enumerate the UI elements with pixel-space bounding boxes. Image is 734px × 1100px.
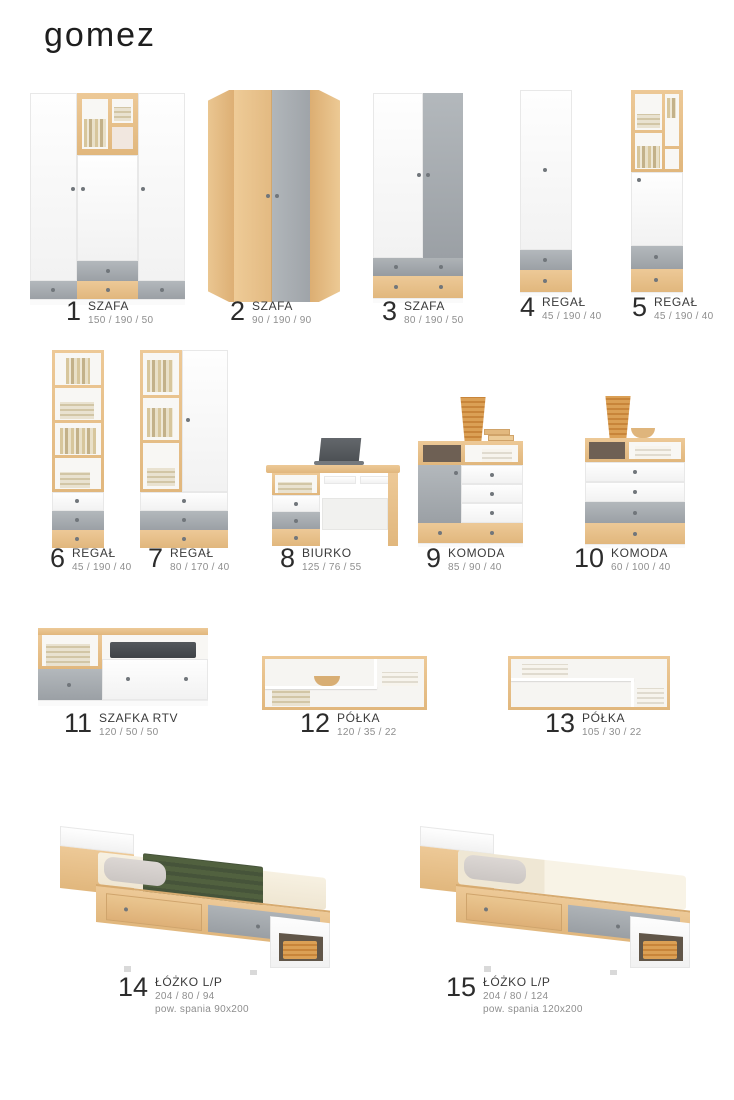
books xyxy=(60,402,94,419)
books xyxy=(60,428,96,454)
books xyxy=(278,482,312,493)
product-name: REGAŁ xyxy=(170,547,230,561)
product-image-lozko-14 xyxy=(38,818,333,975)
product-image-polka-13 xyxy=(508,656,670,710)
books xyxy=(147,360,173,392)
product-name: SZAFA xyxy=(252,300,312,314)
drawer-wood xyxy=(466,893,562,931)
product-dims: 120 / 50 / 50 xyxy=(99,726,178,739)
cabinet-front-white xyxy=(102,659,208,700)
books xyxy=(522,664,568,678)
product-dims: 85 / 90 / 40 xyxy=(448,561,505,574)
wardrobe-door-left xyxy=(30,93,77,281)
product-name: REGAŁ xyxy=(542,296,602,310)
product-name: PÓŁKA xyxy=(582,712,642,726)
product-number: 12 xyxy=(300,712,330,735)
books xyxy=(637,114,660,128)
product-image-regal-6 xyxy=(52,350,104,548)
product-image-regal-4 xyxy=(520,90,572,296)
product-number: 2 xyxy=(230,300,245,323)
product-dims: 80 / 170 / 40 xyxy=(170,561,230,574)
desk-shelf xyxy=(324,476,356,484)
product-dims: 90 / 190 / 90 xyxy=(252,314,312,327)
product-number: 9 xyxy=(426,547,441,570)
drawer-gray xyxy=(373,258,463,276)
books xyxy=(147,468,175,486)
wicker-basket xyxy=(643,941,677,959)
product-label-8: 8 BIURKO 125 / 76 / 55 xyxy=(280,547,362,574)
wardrobe-door-center xyxy=(77,155,138,261)
product-number: 1 xyxy=(66,300,81,323)
books xyxy=(66,358,90,384)
product-number: 7 xyxy=(148,547,163,570)
desk-leg xyxy=(388,473,398,546)
wardrobe-door-white xyxy=(373,93,423,258)
desk-top xyxy=(266,465,400,473)
product-image-regal-7 xyxy=(140,350,228,548)
books xyxy=(635,446,671,459)
laptop-screen xyxy=(319,438,362,462)
product-number: 6 xyxy=(50,547,65,570)
footboard-storage xyxy=(630,916,690,968)
product-name: PÓŁKA xyxy=(337,712,397,726)
books xyxy=(637,146,660,168)
product-image-biurko-8 xyxy=(262,436,404,546)
product-label-9: 9 KOMODA 85 / 90 / 40 xyxy=(426,547,505,574)
product-dims: 60 / 100 / 40 xyxy=(611,561,671,574)
books xyxy=(637,688,664,707)
shelf-divider xyxy=(374,659,377,689)
product-label-14: 14 ŁÓŻKO L/P 204 / 80 / 94 pow. spania 9… xyxy=(118,976,249,1016)
wardrobe-door-right xyxy=(138,93,185,281)
product-dims: 45 / 190 / 40 xyxy=(654,310,714,323)
product-dims: 80 / 190 / 50 xyxy=(404,314,464,327)
product-label-7: 7 REGAŁ 80 / 170 / 40 xyxy=(148,547,230,574)
product-name: BIURKO xyxy=(302,547,362,561)
drawer-wood xyxy=(106,893,202,931)
product-number: 8 xyxy=(280,547,295,570)
books xyxy=(147,408,173,437)
product-label-3: 3 SZAFA 80 / 190 / 50 xyxy=(382,300,464,327)
product-name: KOMODA xyxy=(448,547,505,561)
product-image-komoda-10 xyxy=(585,396,685,548)
books xyxy=(114,107,131,121)
product-image-szafa-1 xyxy=(30,93,185,305)
product-name: REGAŁ xyxy=(654,296,714,310)
product-sleep-area: pow. spania 90x200 xyxy=(155,1003,249,1016)
product-dims: 105 / 30 / 22 xyxy=(582,726,642,739)
product-sleep-area: pow. spania 120x200 xyxy=(483,1003,583,1016)
product-label-12: 12 PÓŁKA 120 / 35 / 22 xyxy=(300,712,397,739)
product-dims: 204 / 80 / 124 xyxy=(483,990,583,1003)
product-number: 10 xyxy=(574,547,604,570)
wood-bowl xyxy=(631,428,655,438)
wicker-vase xyxy=(603,396,633,438)
tv-device xyxy=(110,642,196,658)
product-dims: 204 / 80 / 94 xyxy=(155,990,249,1003)
product-label-13: 13 PÓŁKA 105 / 30 / 22 xyxy=(545,712,642,739)
product-label-6: 6 REGAŁ 45 / 190 / 40 xyxy=(50,547,132,574)
books xyxy=(84,119,106,147)
product-number: 14 xyxy=(118,976,148,999)
product-name: SZAFA xyxy=(404,300,464,314)
product-name: KOMODA xyxy=(611,547,671,561)
product-label-1: 1 SZAFA 150 / 190 / 50 xyxy=(66,300,153,327)
footboard-storage xyxy=(270,916,330,968)
product-name: REGAŁ xyxy=(72,547,132,561)
product-dims: 45 / 190 / 40 xyxy=(542,310,602,323)
catalog-page: gomez xyxy=(0,0,734,1100)
open-niche xyxy=(589,442,625,459)
product-number: 11 xyxy=(64,712,92,735)
product-number: 5 xyxy=(632,296,647,319)
product-image-komoda-9 xyxy=(418,395,523,547)
product-image-szafa-2 xyxy=(208,90,340,302)
product-label-4: 4 REGAŁ 45 / 190 / 40 xyxy=(520,296,602,323)
shelf-divider xyxy=(631,678,634,707)
books xyxy=(482,449,512,462)
shelf-divider xyxy=(511,678,634,681)
product-image-szafa-3 xyxy=(373,93,463,303)
product-name: ŁÓŻKO L/P xyxy=(483,976,583,990)
books xyxy=(382,672,418,686)
drawer-wood xyxy=(373,276,463,298)
product-label-11: 11 SZAFKA RTV 120 / 50 / 50 xyxy=(64,712,178,739)
product-label-10: 10 KOMODA 60 / 100 / 40 xyxy=(574,547,671,574)
product-image-szafka-rtv-11 xyxy=(38,628,208,708)
books xyxy=(60,472,90,488)
product-image-regal-5 xyxy=(631,90,683,296)
product-number: 15 xyxy=(446,976,476,999)
product-label-2: 2 SZAFA 90 / 190 / 90 xyxy=(230,300,312,327)
product-name: SZAFKA RTV xyxy=(99,712,178,726)
product-name: SZAFA xyxy=(88,300,153,314)
product-image-polka-12 xyxy=(262,656,427,710)
product-label-15: 15 ŁÓŻKO L/P 204 / 80 / 124 pow. spania … xyxy=(446,976,583,1016)
product-number: 13 xyxy=(545,712,575,735)
books xyxy=(272,690,310,706)
cabinet-door xyxy=(631,172,683,246)
tv-stand-top xyxy=(38,628,208,635)
product-name: ŁÓŻKO L/P xyxy=(155,976,249,990)
books xyxy=(667,98,676,118)
open-niche xyxy=(423,445,461,462)
product-dims: 45 / 190 / 40 xyxy=(72,561,132,574)
product-dims: 125 / 76 / 55 xyxy=(302,561,362,574)
shelf-divider xyxy=(265,686,377,689)
product-dims: 150 / 190 / 50 xyxy=(88,314,153,327)
product-number: 3 xyxy=(382,300,397,323)
drawer-wood xyxy=(418,523,523,543)
product-number: 4 xyxy=(520,296,535,319)
brand-logo: gomez xyxy=(44,16,156,55)
product-dims: 120 / 35 / 22 xyxy=(337,726,397,739)
books xyxy=(46,644,90,666)
product-image-lozko-15 xyxy=(398,818,693,975)
desk-panel xyxy=(322,498,388,530)
product-label-5: 5 REGAŁ 45 / 190 / 40 xyxy=(632,296,714,323)
wicker-basket xyxy=(283,941,317,959)
